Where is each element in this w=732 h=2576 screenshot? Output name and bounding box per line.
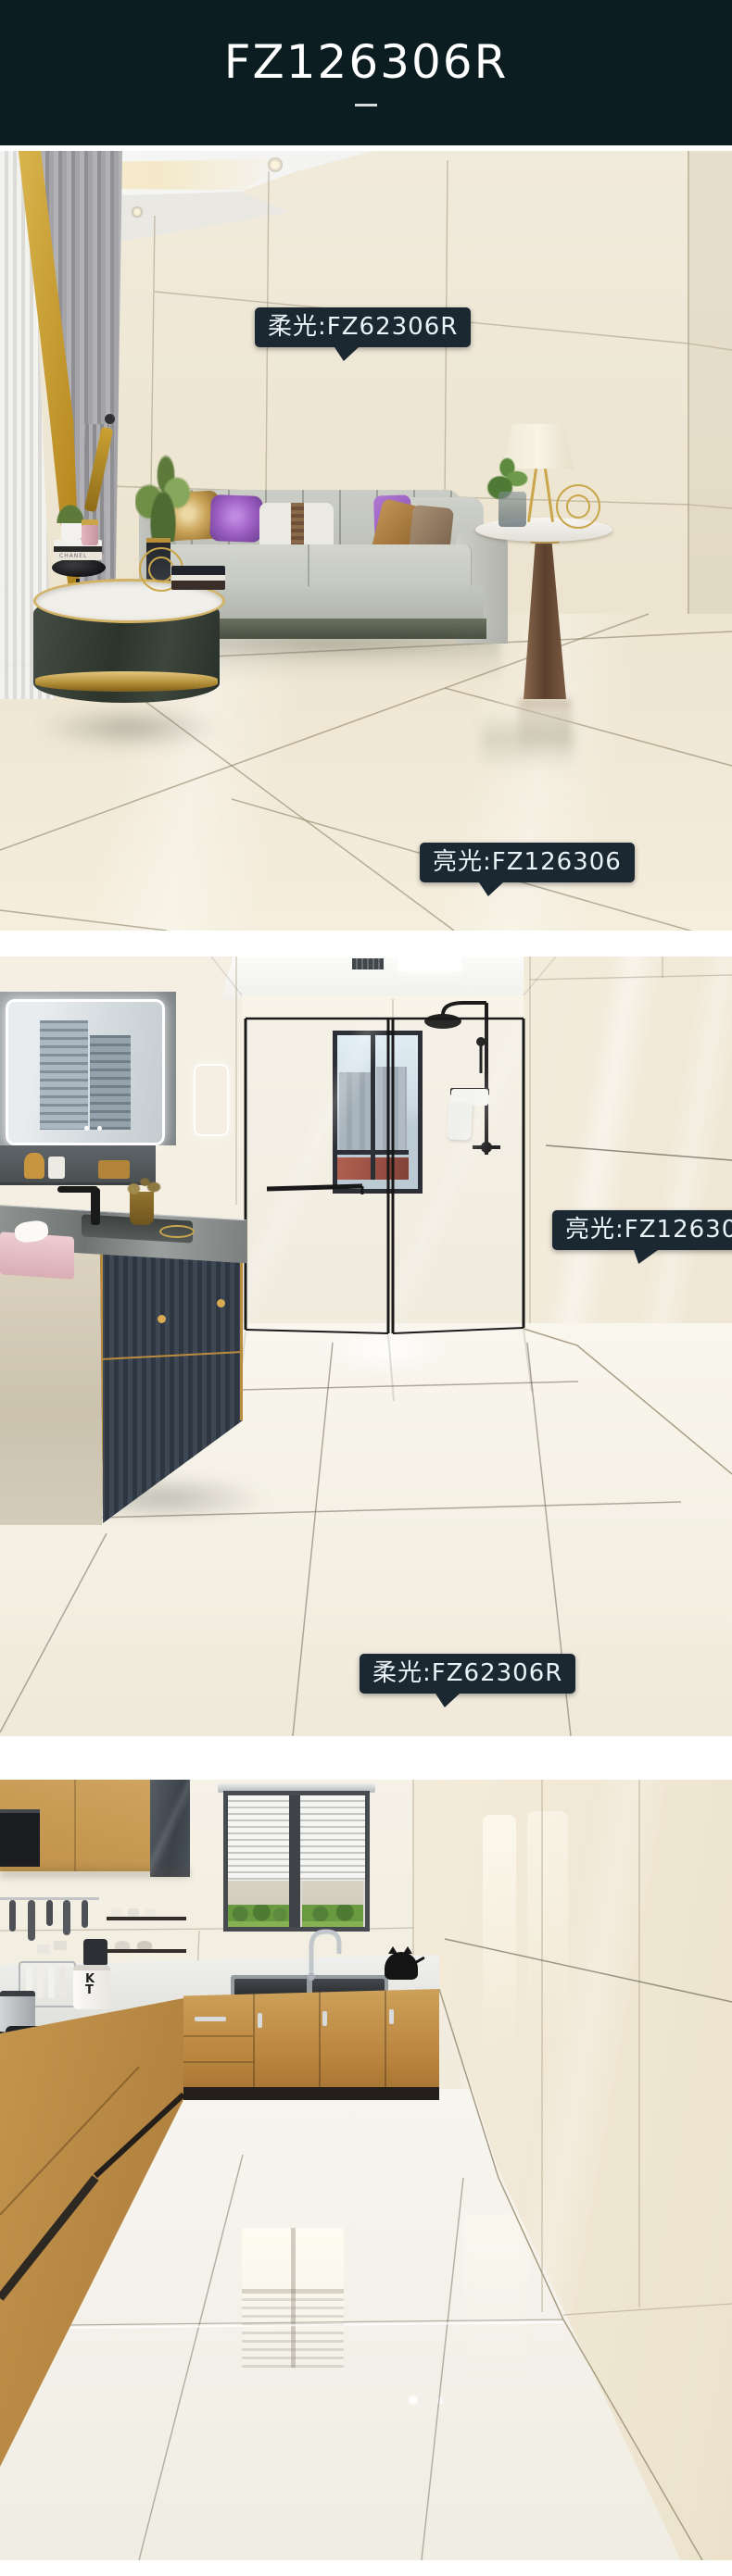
wall-shelf <box>107 1917 186 1920</box>
gold-jar <box>24 1153 44 1179</box>
base-cabinet-front <box>183 1989 439 2089</box>
section-gap <box>0 931 732 957</box>
toe-kick <box>183 2087 439 2100</box>
gold-knob <box>158 1315 166 1323</box>
floor-window-reflection <box>242 2228 344 2368</box>
dried-flower-vase <box>130 1192 154 1225</box>
door-handle <box>389 2009 394 2024</box>
faucet-spout <box>57 1186 98 1193</box>
shower-ceiling <box>221 957 539 999</box>
floor-reflection-streak <box>463 2215 528 2382</box>
window-view-buildings <box>302 1881 363 1927</box>
drawer-seam <box>183 2035 253 2037</box>
product-code-title: FZ126306R <box>0 0 732 89</box>
section-gap <box>0 1736 732 1780</box>
shelf-bowl <box>115 1941 130 1949</box>
glass-panel <box>395 1020 522 1332</box>
tile-label-text: 柔光:FZ62306R <box>372 1659 562 1687</box>
product-header: FZ126306R <box>0 0 732 145</box>
spotlight-icon <box>268 157 283 172</box>
hanging-utensil <box>46 1900 53 1926</box>
reflection-crossbar <box>242 2289 344 2294</box>
tile-label-bright: 亮光:FZ126306 <box>420 843 635 882</box>
gold-wire-lamp-cage <box>556 484 600 529</box>
shelf-bowl <box>137 1941 152 1949</box>
shelf-cup <box>145 1908 156 1917</box>
range-hood <box>0 1809 40 1867</box>
pillow-purple <box>209 494 263 543</box>
mirror-reflection-buildings <box>40 1020 88 1130</box>
window-view-grass <box>302 1921 363 1927</box>
gold-knob <box>217 1299 225 1307</box>
lamp-reflection <box>482 707 574 771</box>
ceiling-vent <box>352 958 384 969</box>
mirror-reflection-buildings <box>90 1035 131 1130</box>
cat-ear <box>388 1946 398 1954</box>
gold-tray <box>159 1225 195 1238</box>
window-mullion <box>289 1795 300 1927</box>
cup <box>54 1941 67 1950</box>
table-books <box>171 566 225 590</box>
drawer-seam <box>183 2061 253 2063</box>
cat-ear <box>403 1946 412 1954</box>
window-view-trees <box>228 1905 289 1921</box>
kt-canister: KT <box>73 1965 110 2009</box>
plate <box>59 1967 66 1998</box>
reflection-blinds <box>242 2298 344 2368</box>
wall-shelf <box>107 1949 186 1953</box>
coffee-table-gold-band <box>35 671 218 692</box>
table-reflection <box>37 707 222 749</box>
cabinet-seam <box>74 1780 76 1871</box>
plate <box>48 1967 55 1998</box>
gold-wire-inner <box>148 556 174 582</box>
canister-label: KT <box>85 1974 98 1997</box>
cup <box>37 1945 50 1954</box>
shelf-cup <box>111 1908 122 1917</box>
shelf-cup <box>128 1908 139 1917</box>
side-table-left <box>52 558 106 577</box>
glass-panel <box>247 1020 386 1332</box>
door-seam <box>319 1989 321 2089</box>
tile-label-soft: 柔光:FZ62306R <box>255 307 471 347</box>
page-bottom-margin <box>0 2560 732 2576</box>
door-seam <box>253 1989 255 2089</box>
floor-sparkle <box>410 2396 417 2404</box>
tall-plant <box>135 453 191 542</box>
hanging-utensil <box>9 1900 16 1932</box>
cabinet-shadow <box>0 1869 190 1878</box>
wall-corner-shade <box>688 151 732 629</box>
mirror-touch-dot <box>97 1126 102 1131</box>
door-handle <box>258 2013 262 2028</box>
tile-label-text: 亮光:FZ126306 <box>433 848 622 876</box>
backlit-panel <box>194 1064 229 1136</box>
photo-living-room: CHANEL 柔光:FZ62306R 亮光:FZ1 <box>0 151 732 931</box>
white-jar <box>48 1157 65 1179</box>
kitchen-window <box>223 1783 370 1932</box>
tile-label-bright: 亮光:FZ126306 <box>552 1210 732 1250</box>
door-seam <box>385 1989 386 2089</box>
window-view-buildings <box>228 1881 289 1927</box>
photo-kitchen: KT <box>0 1780 732 2560</box>
glass-sheen <box>150 1780 190 1877</box>
spotlight-icon <box>132 206 143 218</box>
glass-vase <box>499 492 526 527</box>
gold-trim <box>240 1245 243 1420</box>
under-vanity-wall <box>0 1247 102 1525</box>
gold-trim <box>100 1351 243 1360</box>
led-mirror <box>6 999 165 1145</box>
tile-label-soft: 柔光:FZ62306R <box>360 1654 575 1694</box>
window-frame <box>223 1791 370 1932</box>
glass-cabinet <box>150 1780 190 1877</box>
faucet <box>91 1188 100 1225</box>
floor-light-glow <box>315 1323 454 1375</box>
title-underline <box>355 104 377 106</box>
curtain-tieback-knob <box>105 414 115 424</box>
window-view-trees <box>302 1905 363 1921</box>
pink-jar <box>82 525 98 545</box>
coffee-maker <box>83 1939 107 1965</box>
floor-sparkle <box>437 2398 443 2404</box>
cat-figurine <box>385 1952 418 1980</box>
plate <box>37 1967 44 1998</box>
window-view-grass <box>228 1921 289 1927</box>
ceiling-light-panel <box>398 957 461 971</box>
gold-wire-cage-inner <box>562 490 595 523</box>
book-spine-label: CHANEL <box>59 553 87 559</box>
photo-bathroom: 亮光:FZ126306 柔光:FZ62306R <box>0 957 732 1736</box>
mirror-touch-dot <box>84 1126 89 1131</box>
hanging-utensil <box>82 1900 88 1928</box>
hanging-utensil <box>28 1900 35 1941</box>
tile-label-text: 柔光:FZ62306R <box>268 313 458 341</box>
door-handle <box>322 2011 327 2026</box>
tile-label-text: 亮光:FZ126306 <box>565 1216 732 1244</box>
hanging-utensil <box>63 1900 70 1935</box>
dried-grass <box>120 1162 165 1195</box>
drawer-handle <box>195 2017 226 2021</box>
